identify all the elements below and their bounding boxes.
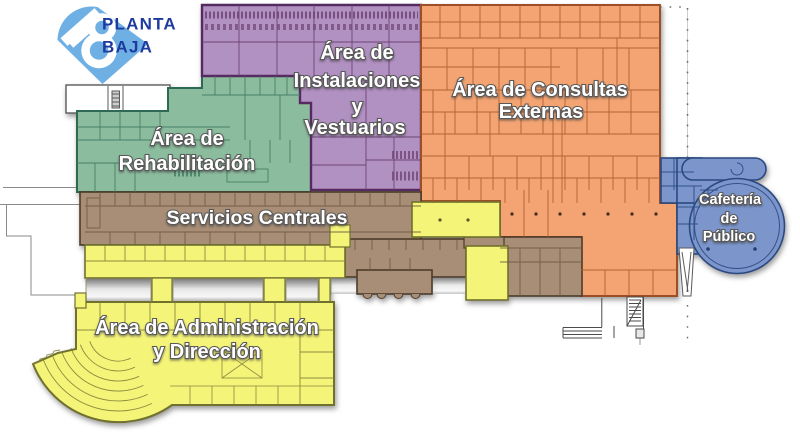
- svg-text:y: y: [351, 96, 363, 118]
- svg-text:Vestuarios: Vestuarios: [304, 117, 405, 139]
- svg-text:Área de Administración: Área de Administración: [95, 316, 319, 339]
- svg-text:Instalaciones: Instalaciones: [294, 70, 421, 92]
- svg-text:Público: Público: [703, 229, 756, 245]
- svg-text:Externas: Externas: [499, 101, 584, 123]
- svg-text:Rehabilitación: Rehabilitación: [119, 153, 256, 175]
- svg-text:Área de Consultas: Área de Consultas: [452, 78, 628, 101]
- svg-text:de: de: [721, 211, 738, 227]
- svg-text:Cafetería: Cafetería: [699, 192, 762, 208]
- svg-text:y Dirección: y Dirección: [153, 341, 261, 363]
- svg-text:BAJA: BAJA: [102, 38, 153, 57]
- svg-text:PLANTA: PLANTA: [102, 15, 177, 34]
- svg-text:Área de: Área de: [150, 127, 223, 150]
- svg-text:Servicios Centrales: Servicios Centrales: [166, 207, 347, 229]
- svg-text:Área de: Área de: [320, 41, 393, 64]
